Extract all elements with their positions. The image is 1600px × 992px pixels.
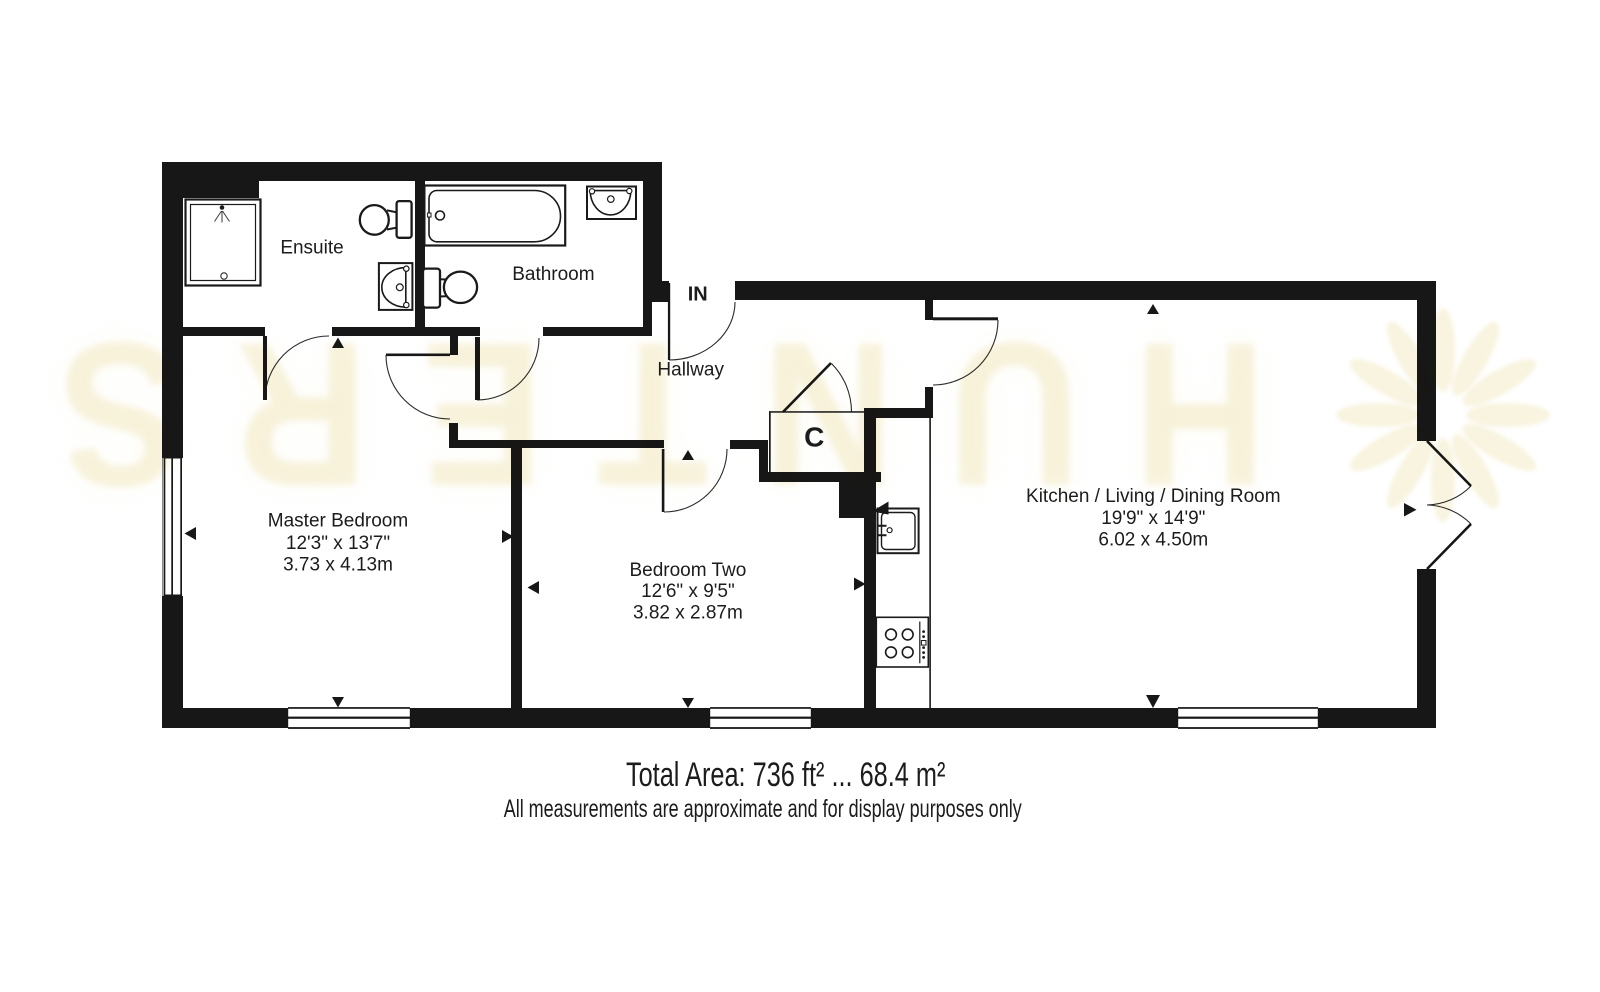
svg-text:3.73 x 4.13m: 3.73 x 4.13m <box>283 554 393 575</box>
svg-text:6.02 x 4.50m: 6.02 x 4.50m <box>1098 529 1208 550</box>
svg-text:Bathroom: Bathroom <box>512 264 594 285</box>
svg-text:3.82 x 2.87m: 3.82 x 2.87m <box>633 602 743 623</box>
svg-text:12'3" x 13'7": 12'3" x 13'7" <box>286 533 390 554</box>
svg-text:12'6" x 9'5": 12'6" x 9'5" <box>641 581 735 602</box>
svg-text:All measurements are approxima: All measurements are approximate and for… <box>504 795 1022 823</box>
svg-text:Bedroom Two: Bedroom Two <box>629 560 746 581</box>
svg-text:HUNTERS: HUNTERS <box>6 300 1266 529</box>
svg-text:Total Area: 736 ft² ... 68.4 m: Total Area: 736 ft² ... 68.4 m² <box>626 756 946 794</box>
svg-text:Ensuite: Ensuite <box>280 237 343 258</box>
